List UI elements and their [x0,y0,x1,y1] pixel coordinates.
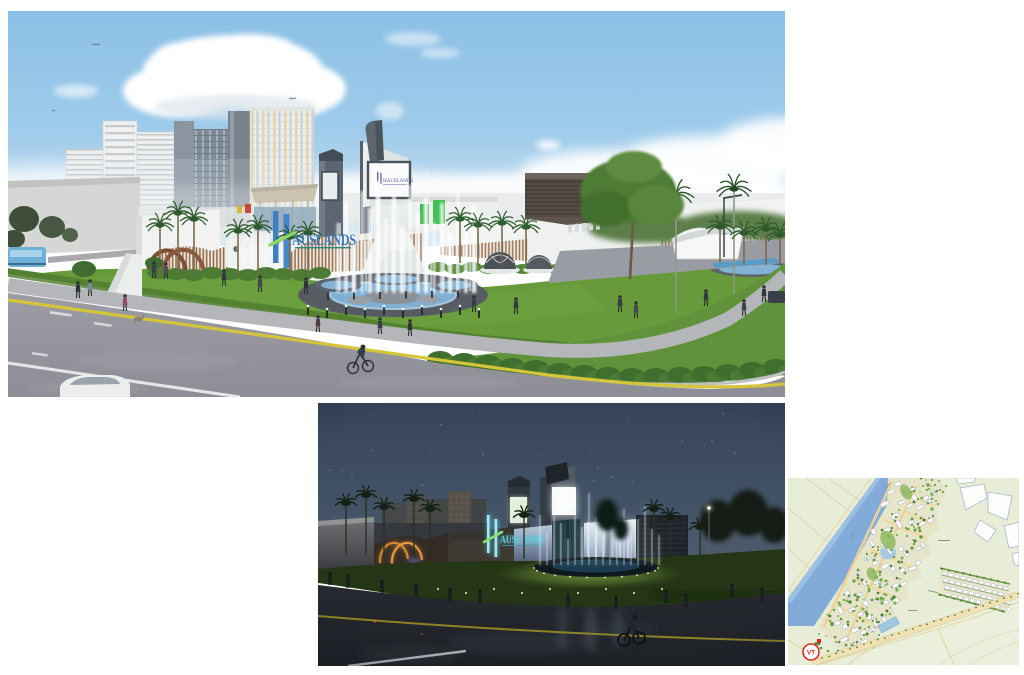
svg-text:VT: VT [807,650,815,657]
svg-text:HAUSLANDS: HAUSLANDS [383,179,414,184]
svg-text:AUSLANDS: AUSLANDS [292,232,356,249]
